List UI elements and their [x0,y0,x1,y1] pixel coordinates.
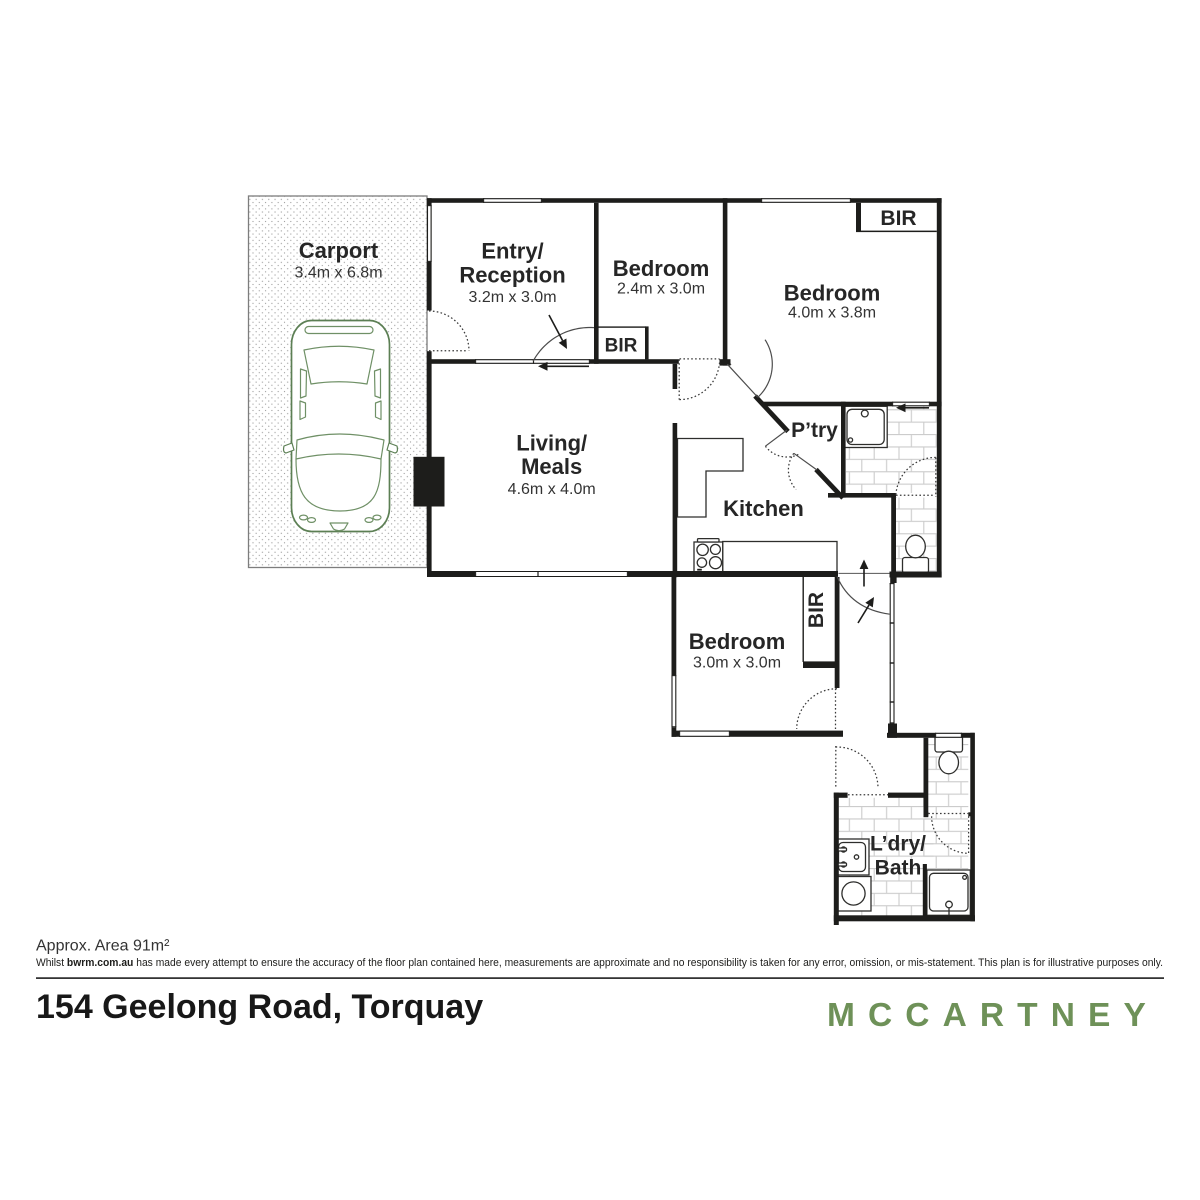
svg-text:Bedroom: Bedroom [689,629,786,654]
svg-text:BIR: BIR [805,592,828,628]
svg-text:3.2m x 3.0m: 3.2m x 3.0m [468,289,556,306]
svg-text:P’try: P’try [791,419,838,442]
svg-text:Bedroom: Bedroom [784,281,881,306]
svg-text:Living/: Living/ [516,431,587,456]
svg-text:Entry/: Entry/ [481,239,543,264]
svg-text:3.4m x 6.8m: 3.4m x 6.8m [294,265,382,282]
svg-text:BIR: BIR [605,336,638,357]
svg-text:Bath: Bath [875,857,922,880]
svg-text:Approx. Area 91m²: Approx. Area 91m² [36,938,170,955]
svg-text:L’dry/: L’dry/ [870,833,926,856]
svg-text:Meals: Meals [521,454,582,479]
svg-text:Whilst bwrm.com.au has made ev: Whilst bwrm.com.au has made every attemp… [36,957,1163,969]
svg-text:4.6m x 4.0m: 4.6m x 4.0m [508,481,596,498]
svg-text:Reception: Reception [459,262,565,287]
svg-text:BIR: BIR [880,207,916,230]
svg-text:Kitchen: Kitchen [723,496,804,521]
svg-text:4.0m x 3.8m: 4.0m x 3.8m [788,305,876,322]
svg-text:MCCARTNEY: MCCARTNEY [827,997,1159,1034]
svg-text:Bedroom: Bedroom [613,256,710,281]
svg-text:154 Geelong Road, Torquay: 154 Geelong Road, Torquay [36,988,483,1026]
svg-text:3.0m x 3.0m: 3.0m x 3.0m [693,655,781,672]
svg-text:2.4m x 3.0m: 2.4m x 3.0m [617,281,705,298]
svg-text:Carport: Carport [299,238,379,263]
